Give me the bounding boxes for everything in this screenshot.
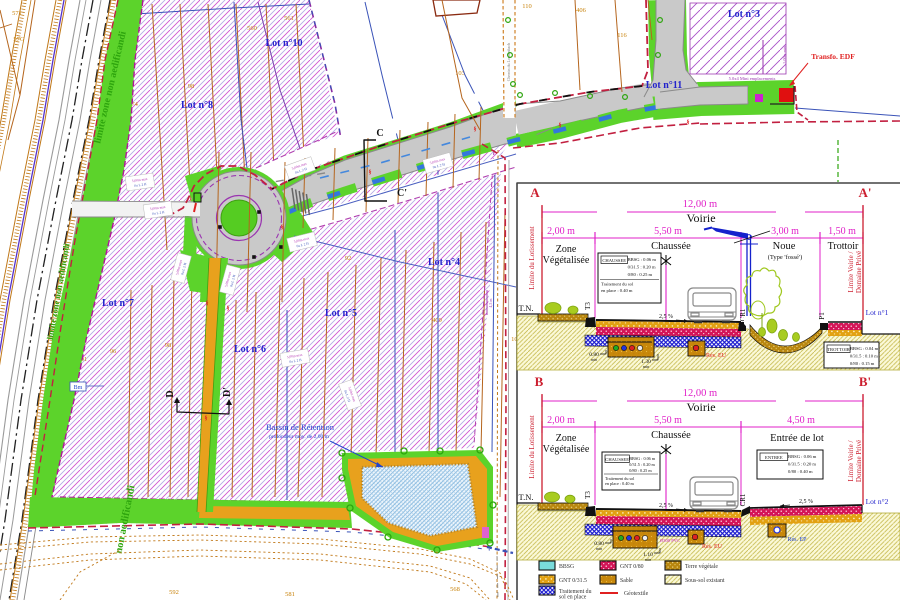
svg-text:en place : 0.40 m: en place : 0.40 m bbox=[605, 481, 634, 486]
svg-text:4,50 m: 4,50 m bbox=[787, 415, 815, 426]
svg-text:0/31.5 : 0.10 m: 0/31.5 : 0.10 m bbox=[850, 354, 878, 359]
svg-text:§: § bbox=[687, 120, 690, 126]
svg-text:Rés. EU: Rés. EU bbox=[702, 544, 723, 550]
svg-text:min: min bbox=[645, 557, 651, 562]
svg-text:92: 92 bbox=[345, 255, 352, 262]
svg-text:5,50 m: 5,50 m bbox=[654, 415, 682, 426]
svg-text:110: 110 bbox=[522, 3, 532, 10]
svg-text:Voirie: Voirie bbox=[686, 211, 715, 225]
svg-text:TROTTOIR: TROTTOIR bbox=[827, 347, 851, 352]
svg-text:0/31.5 : 0.20 m: 0/31.5 : 0.20 m bbox=[788, 462, 816, 467]
svg-text:P1: P1 bbox=[818, 312, 826, 320]
svg-text:Voirie: Voirie bbox=[686, 400, 715, 414]
svg-text:568: 568 bbox=[450, 586, 460, 593]
svg-text:A': A' bbox=[859, 185, 872, 200]
svg-text:116: 116 bbox=[617, 32, 627, 39]
svg-text:Domaine Privé: Domaine Privé bbox=[855, 440, 863, 482]
svg-text:min: min bbox=[643, 364, 649, 369]
svg-text:CR1: CR1 bbox=[739, 493, 747, 506]
svg-text:§: § bbox=[281, 225, 284, 231]
svg-text:Lot n°10: Lot n°10 bbox=[265, 38, 302, 49]
svg-text:T3: T3 bbox=[584, 302, 592, 310]
svg-text:0/80 : 0.15 m: 0/80 : 0.15 m bbox=[850, 361, 875, 366]
svg-text:Lot n°5: Lot n°5 bbox=[325, 308, 357, 319]
svg-text:96: 96 bbox=[110, 348, 117, 355]
svg-text:409: 409 bbox=[432, 317, 442, 324]
svg-text:0/80 : 0.40 m: 0/80 : 0.40 m bbox=[788, 469, 813, 474]
svg-text:Lot n°7: Lot n°7 bbox=[102, 298, 134, 309]
svg-text:§: § bbox=[206, 301, 209, 307]
svg-text:Géotextile: Géotextile bbox=[624, 591, 649, 597]
svg-text:561: 561 bbox=[284, 15, 294, 22]
svg-text:2,00 m: 2,00 m bbox=[547, 226, 575, 237]
svg-text:B': B' bbox=[859, 374, 871, 389]
svg-text:1,50 m: 1,50 m bbox=[828, 226, 856, 237]
svg-text:en place : 0.40 m: en place : 0.40 m bbox=[601, 288, 633, 293]
svg-text:571: 571 bbox=[12, 10, 22, 17]
svg-text:Limite du Lotissement: Limite du Lotissement bbox=[528, 415, 536, 478]
svg-text:(Type 'fossé'): (Type 'fossé') bbox=[768, 254, 803, 261]
svg-text:Domaine Privé: Domaine Privé bbox=[855, 251, 863, 293]
svg-text:Bm: Bm bbox=[74, 385, 83, 391]
svg-text:Limite Voirie /: Limite Voirie / bbox=[847, 440, 855, 481]
svg-text:T3: T3 bbox=[584, 491, 592, 499]
svg-text:592: 592 bbox=[169, 589, 179, 596]
svg-text:§: § bbox=[559, 123, 562, 129]
svg-text:BBSG : 0.06 m: BBSG : 0.06 m bbox=[788, 454, 817, 459]
svg-text:BBSG : 0.04 m: BBSG : 0.04 m bbox=[850, 346, 879, 351]
svg-text:2,00 m: 2,00 m bbox=[547, 415, 575, 426]
svg-text:ENTREE: ENTREE bbox=[765, 455, 783, 460]
svg-text:CHAUSSEE: CHAUSSEE bbox=[602, 258, 626, 263]
svg-text:B: B bbox=[535, 374, 544, 389]
svg-text:Transfo. EDF: Transfo. EDF bbox=[811, 52, 855, 61]
svg-text:T.N.: T.N. bbox=[519, 492, 534, 502]
svg-text:Zone: Zone bbox=[556, 433, 577, 444]
svg-text:C: C bbox=[376, 128, 383, 139]
svg-text:Chaussée: Chaussée bbox=[651, 241, 691, 252]
svg-text:Zone: Zone bbox=[556, 244, 577, 255]
svg-text:D: D bbox=[165, 390, 176, 397]
svg-text:0/31.5 : 0.20 m: 0/31.5 : 0.20 m bbox=[628, 265, 656, 270]
svg-text:560: 560 bbox=[247, 25, 257, 32]
svg-text:Végétalisée: Végétalisée bbox=[543, 444, 590, 455]
svg-text:98: 98 bbox=[165, 342, 172, 349]
svg-text:12,00 m: 12,00 m bbox=[683, 388, 717, 399]
svg-text:§: § bbox=[205, 416, 208, 422]
svg-text:min: min bbox=[591, 357, 597, 362]
svg-text:5.0x4 Mini emplacements: 5.0x4 Mini emplacements bbox=[729, 76, 776, 81]
svg-text:CHAUSSEE: CHAUSSEE bbox=[605, 457, 629, 462]
svg-text:0/80 : 0.25 m: 0/80 : 0.25 m bbox=[629, 468, 652, 473]
svg-text:GNT 0/80: GNT 0/80 bbox=[620, 564, 644, 570]
svg-text:§: § bbox=[369, 170, 372, 176]
svg-text:0/80 : 0.25 m: 0/80 : 0.25 m bbox=[628, 272, 653, 277]
svg-text:GNT 0/31.5: GNT 0/31.5 bbox=[559, 578, 587, 584]
svg-text:57G: 57G bbox=[13, 36, 25, 43]
svg-text:D': D' bbox=[222, 387, 233, 397]
svg-text:Trottoir: Trottoir bbox=[828, 241, 859, 252]
svg-text:3,00 m: 3,00 m bbox=[771, 226, 799, 237]
svg-text:Lot n°4: Lot n°4 bbox=[428, 257, 460, 268]
svg-text:Sous-sol existant: Sous-sol existant bbox=[685, 578, 725, 584]
svg-text:BBSG: BBSG bbox=[559, 564, 574, 570]
svg-text:Limite Voirie /: Limite Voirie / bbox=[847, 251, 855, 292]
svg-text:T.N.: T.N. bbox=[519, 303, 534, 313]
svg-text:Lot n°6: Lot n°6 bbox=[234, 344, 266, 355]
svg-text:Lot n°3: Lot n°3 bbox=[728, 9, 760, 20]
svg-text:Végétalisée: Végétalisée bbox=[543, 255, 590, 266]
svg-text:Chaussée: Chaussée bbox=[651, 430, 691, 441]
svg-text:Limite du Lotissement: Limite du Lotissement bbox=[528, 226, 536, 289]
svg-text:2,5 %: 2,5 % bbox=[659, 314, 673, 320]
svg-text:Bassin de Rétention: Bassin de Rétention bbox=[266, 422, 335, 432]
svg-text:Entrée de lot: Entrée de lot bbox=[770, 433, 824, 444]
svg-text:Sable: Sable bbox=[620, 578, 633, 584]
svg-text:Lot n°8: Lot n°8 bbox=[181, 100, 213, 111]
svg-text:Traitement du sol: Traitement du sol bbox=[601, 282, 634, 287]
svg-text:sol en place: sol en place bbox=[559, 595, 587, 600]
svg-text:581: 581 bbox=[285, 591, 295, 598]
svg-text:Rés. EP: Rés. EP bbox=[787, 537, 807, 543]
svg-text:min: min bbox=[596, 546, 602, 551]
svg-text:2,5 %: 2,5 % bbox=[799, 499, 813, 505]
svg-text:Noue: Noue bbox=[773, 241, 796, 252]
svg-text:0/31.5 : 0.20 m: 0/31.5 : 0.20 m bbox=[629, 462, 655, 467]
svg-text:A: A bbox=[530, 185, 540, 200]
svg-text:profondeur moy. de 2,00 m: profondeur moy. de 2,00 m bbox=[269, 433, 330, 440]
svg-text:98: 98 bbox=[188, 83, 195, 90]
svg-text:Terre végétale: Terre végétale bbox=[685, 564, 718, 570]
svg-text:C': C' bbox=[397, 188, 407, 199]
svg-text:Lot n°1: Lot n°1 bbox=[866, 308, 889, 317]
svg-text:Lot n°2: Lot n°2 bbox=[866, 497, 889, 506]
svg-text:§: § bbox=[227, 306, 230, 312]
svg-text:Chemin du Londenbach: Chemin du Londenbach bbox=[506, 43, 511, 81]
svg-text:12,00 m: 12,00 m bbox=[683, 199, 717, 210]
svg-text:Ø300 PVC: Ø300 PVC bbox=[660, 538, 680, 543]
svg-text:BBSG : 0.06 m: BBSG : 0.06 m bbox=[629, 456, 656, 461]
svg-text:2,5 %: 2,5 % bbox=[659, 503, 673, 509]
svg-text:406: 406 bbox=[576, 7, 587, 14]
svg-text:Rés. EU: Rés. EU bbox=[706, 353, 727, 359]
svg-text:§: § bbox=[474, 127, 477, 133]
svg-text:BBSG : 0.06 m: BBSG : 0.06 m bbox=[628, 257, 657, 262]
svg-text:Lot n°11: Lot n°11 bbox=[646, 80, 683, 91]
svg-text:5,50 m: 5,50 m bbox=[654, 226, 682, 237]
